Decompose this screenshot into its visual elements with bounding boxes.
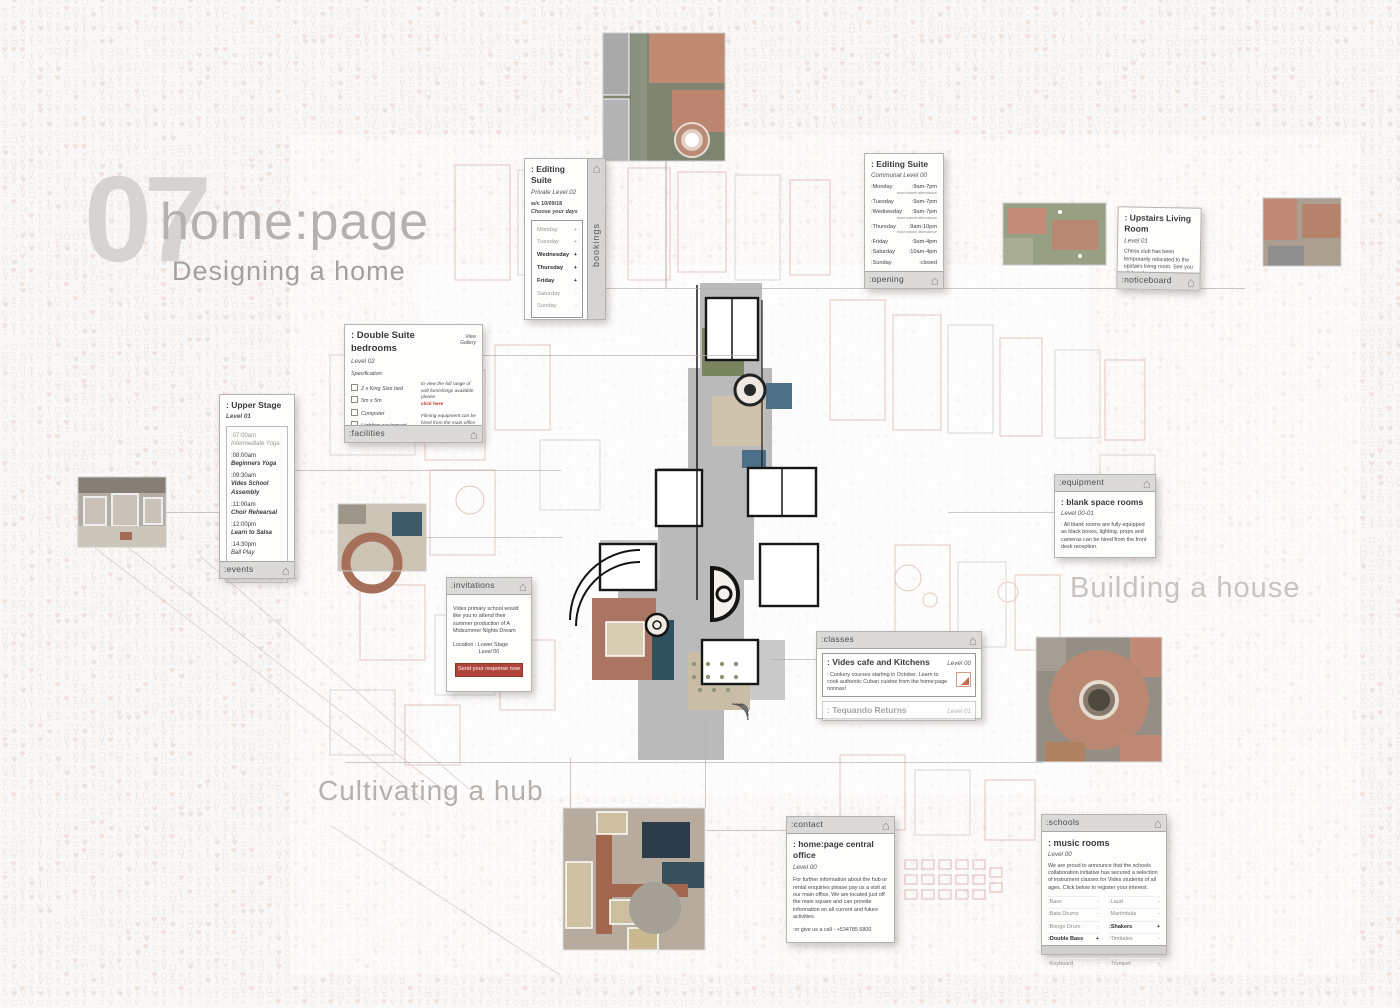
schools-tab[interactable]: :schools ⌂ <box>1042 815 1166 832</box>
event-entry: :08:00amBeginners Yoga <box>231 450 283 470</box>
opening-tab[interactable]: :opening ⌂ <box>865 271 943 288</box>
instrument-option[interactable]: :Bass- <box>1048 896 1099 908</box>
view-gallery-link[interactable]: View Gallery <box>451 334 476 346</box>
send-response-button[interactable]: Send your response now <box>455 663 523 678</box>
equipment-text: : All blank rooms are fully equipped as … <box>1061 522 1149 551</box>
home-icon[interactable]: ⌂ <box>1187 275 1195 288</box>
connector-line <box>293 470 561 471</box>
render-thumbnail-left <box>78 477 166 547</box>
card-title: : Editing Suite <box>871 159 937 170</box>
spec-item: Computer <box>351 407 421 419</box>
connector-line <box>706 830 786 831</box>
event-entry: :12:00pmLearn to Salsa <box>231 519 283 539</box>
equipment-card: :equipment ⌂ : blank space rooms Level 0… <box>1054 474 1156 558</box>
instrument-option[interactable]: :Laud- <box>1109 896 1160 908</box>
day-picker: Monday+ Tuesday+ Wednesday+ Thursday+ Fr… <box>531 220 583 318</box>
bookings-tab-label: bookings <box>590 223 602 267</box>
card-level: Level 02 <box>351 358 476 367</box>
equipment-tab[interactable]: :equipment ⌂ <box>1055 475 1155 492</box>
page-title: home:page <box>160 192 429 252</box>
invitation-location: Location : Lower Stage <box>453 642 525 649</box>
invitations-tab[interactable]: :invitations ⌂ <box>447 578 531 595</box>
facilities-tab[interactable]: :facilities ⌂ <box>345 425 482 442</box>
event-entry: :07:00amIntermediate Yoga <box>231 430 283 450</box>
instrument-option[interactable]: :Marimbula- <box>1109 908 1160 920</box>
instrument-option[interactable]: :Trumpet- <box>1109 958 1160 970</box>
home-icon[interactable]: ⌂ <box>1143 477 1151 490</box>
home-icon[interactable]: ⌂ <box>282 564 290 577</box>
card-level: Private Level 02 <box>531 189 583 198</box>
day-option[interactable]: Thursday+ <box>536 262 578 275</box>
invitation-text: Vides primary school would like you to a… <box>453 606 525 635</box>
event-entry: :11:00amChoir Rehearsal <box>231 499 283 519</box>
class-desc: : Cookery courses starting in October. L… <box>827 672 950 694</box>
render-thumbnail-top <box>603 33 725 161</box>
schools-tab-label: :schools <box>1046 817 1080 828</box>
classes-card: :classes ⌂ : Vides cafe and Kitchens Lev… <box>816 631 982 719</box>
connector-line <box>481 355 757 356</box>
section-title-hub: Cultivating a hub <box>318 775 544 807</box>
opening-hours-row: :Tuesday:9am-7pm <box>871 199 937 207</box>
events-tab[interactable]: :events ⌂ <box>220 561 294 578</box>
events-card: : Upper Stage Level 01 :07:00amIntermedi… <box>219 394 295 579</box>
card-level: Level 00 <box>1048 851 1160 860</box>
card-level: Level 00-01 <box>1061 510 1149 519</box>
day-option[interactable]: Friday+ <box>536 275 578 288</box>
connector-line <box>166 512 219 513</box>
opening-card: : Editing Suite Communal Level 00 :Monda… <box>864 153 944 289</box>
render-thumbnail-right-edge <box>1263 198 1341 266</box>
render-thumbnail-bottom <box>563 808 705 950</box>
furnishings-text: to view the full range of soft furnishin… <box>421 382 476 401</box>
spec-checkbox[interactable] <box>351 384 358 391</box>
card-title: : Upper Stage <box>226 400 288 411</box>
render-thumbnail-top-right <box>1003 203 1106 265</box>
home-icon[interactable]: ⌂ <box>593 162 601 175</box>
day-option[interactable]: Sunday- <box>536 301 578 314</box>
class-item[interactable]: : Tequando Returns Level 01 <box>822 701 976 721</box>
home-icon[interactable]: ⌂ <box>1154 817 1162 830</box>
equipment-tab-label: :equipment <box>1059 477 1104 488</box>
chart-corner-icon <box>956 672 971 687</box>
card-title: : Editing Suite <box>531 164 583 187</box>
event-entry: :14:30pmBall Play <box>231 539 283 559</box>
click-here-link[interactable]: click here <box>421 402 476 408</box>
card-title: : Double Suite bedrooms <box>351 330 451 356</box>
facilities-card: : Double Suite bedrooms View Gallery Lev… <box>344 324 483 443</box>
page-subtitle: Designing a home <box>172 256 406 287</box>
event-entry: :09:30amVides School Assembly <box>231 470 283 498</box>
site-plan-drawing <box>0 0 1400 990</box>
classes-tab-label: :classes <box>821 634 854 645</box>
class-title: : Tequando Returns <box>827 705 907 716</box>
opening-tab-label: :opening <box>869 274 904 285</box>
connector-line <box>948 512 1054 513</box>
bookings-card: : Editing Suite Private Level 02 w/c 10/… <box>524 158 606 320</box>
connector-line <box>570 758 571 810</box>
home-icon[interactable]: ⌂ <box>470 428 478 441</box>
spec-checkbox[interactable] <box>351 396 358 403</box>
instrument-list: :Bass- :Bata Drums- :Bongo Drum- :Double… <box>1048 896 1160 971</box>
day-option[interactable]: Saturday- <box>536 288 578 301</box>
card-level: Level 00 <box>793 864 888 873</box>
invitations-tab-label: :invitations <box>451 580 495 591</box>
opening-hours-row: :Friday:9am-4pm <box>871 239 937 247</box>
render-thumbnail-dome <box>1036 637 1162 762</box>
schools-text: We are proud to announce that the school… <box>1048 863 1160 892</box>
instrument-option[interactable]: :Timbales- <box>1109 933 1160 945</box>
events-tab-label: :events <box>224 564 254 575</box>
schools-card: :schools ⌂ : music rooms Level 00 We are… <box>1041 814 1167 955</box>
class-item[interactable]: : Vides cafe and Kitchens Level 00 : Coo… <box>822 653 976 697</box>
connector-line <box>705 718 706 808</box>
connector-line <box>426 537 562 538</box>
spec-checkbox[interactable] <box>351 409 358 416</box>
instrument-option[interactable]: :Double Bass+ <box>1048 933 1099 945</box>
spec-item: 5m x 5m <box>351 395 421 407</box>
home-icon[interactable]: ⌂ <box>519 580 527 593</box>
bookings-tab[interactable]: ⌂ bookings <box>587 159 605 319</box>
card-title: : music rooms <box>1048 837 1160 849</box>
card-level: Level 01 <box>226 413 288 422</box>
invitations-card: :invitations ⌂ Vides primary school woul… <box>446 577 532 692</box>
day-option[interactable]: Tuesday+ <box>536 237 578 250</box>
connector-line <box>345 762 1043 763</box>
day-option[interactable]: Wednesday+ <box>536 250 578 263</box>
home-icon[interactable]: ⌂ <box>931 274 939 287</box>
connector-line <box>770 659 816 660</box>
schools-footer-bar <box>1042 945 1166 954</box>
card-title: : Upstairs Living Room <box>1124 212 1194 236</box>
section-title-building: Building a house <box>1070 572 1300 605</box>
opening-hours-row: :Sunday:closed <box>871 260 937 268</box>
spec-heading: Specification: <box>351 371 476 378</box>
day-option[interactable]: Monday+ <box>536 224 578 237</box>
class-level: Level 01 <box>947 708 971 717</box>
card-level: Level 01 <box>1124 237 1194 247</box>
card-title: : home:page central office <box>793 839 888 862</box>
contact-tab[interactable]: :contact ⌂ <box>787 817 894 834</box>
choose-days-prompt: Choose your days <box>531 209 583 216</box>
contact-text: For further information about the hub or… <box>793 877 888 921</box>
card-level: Communal Level 00 <box>871 172 937 181</box>
contact-tab-label: :contact <box>791 819 823 830</box>
week-label: w/c 10/09/18 <box>531 201 583 208</box>
class-title: : Vides cafe and Kitchens <box>827 657 930 668</box>
contact-card: :contact ⌂ : home:page central office Le… <box>786 816 895 943</box>
instrument-option[interactable]: :Bata Drums- <box>1048 908 1099 920</box>
instrument-option[interactable]: :Shakers+ <box>1109 921 1160 933</box>
home-icon[interactable]: ⌂ <box>969 634 977 647</box>
noticeboard-tab-label: :noticeboard <box>1121 275 1172 287</box>
contact-phone: :or give us a call - +534785 6800 <box>793 927 888 934</box>
opening-hours-row: :Saturday:10am-4pm <box>871 249 937 257</box>
classes-tab[interactable]: :classes ⌂ <box>817 632 981 649</box>
noticeboard-card: : Upstairs Living Room Level 01 Chess cl… <box>1116 206 1201 290</box>
invitation-level: Level 00 <box>453 649 525 656</box>
class-level: Level 00 <box>947 660 971 669</box>
facilities-tab-label: :facilities <box>349 428 385 439</box>
instrument-option[interactable]: :Keyboard- <box>1048 958 1099 970</box>
card-title: : blank space rooms <box>1061 497 1149 508</box>
noticeboard-tab[interactable]: :noticeboard ⌂ <box>1117 271 1199 289</box>
home-icon[interactable]: ⌂ <box>882 819 890 832</box>
instrument-option[interactable]: :Bongo Drum- <box>1048 921 1099 933</box>
spec-item: 2 x King Size bed <box>351 382 421 394</box>
